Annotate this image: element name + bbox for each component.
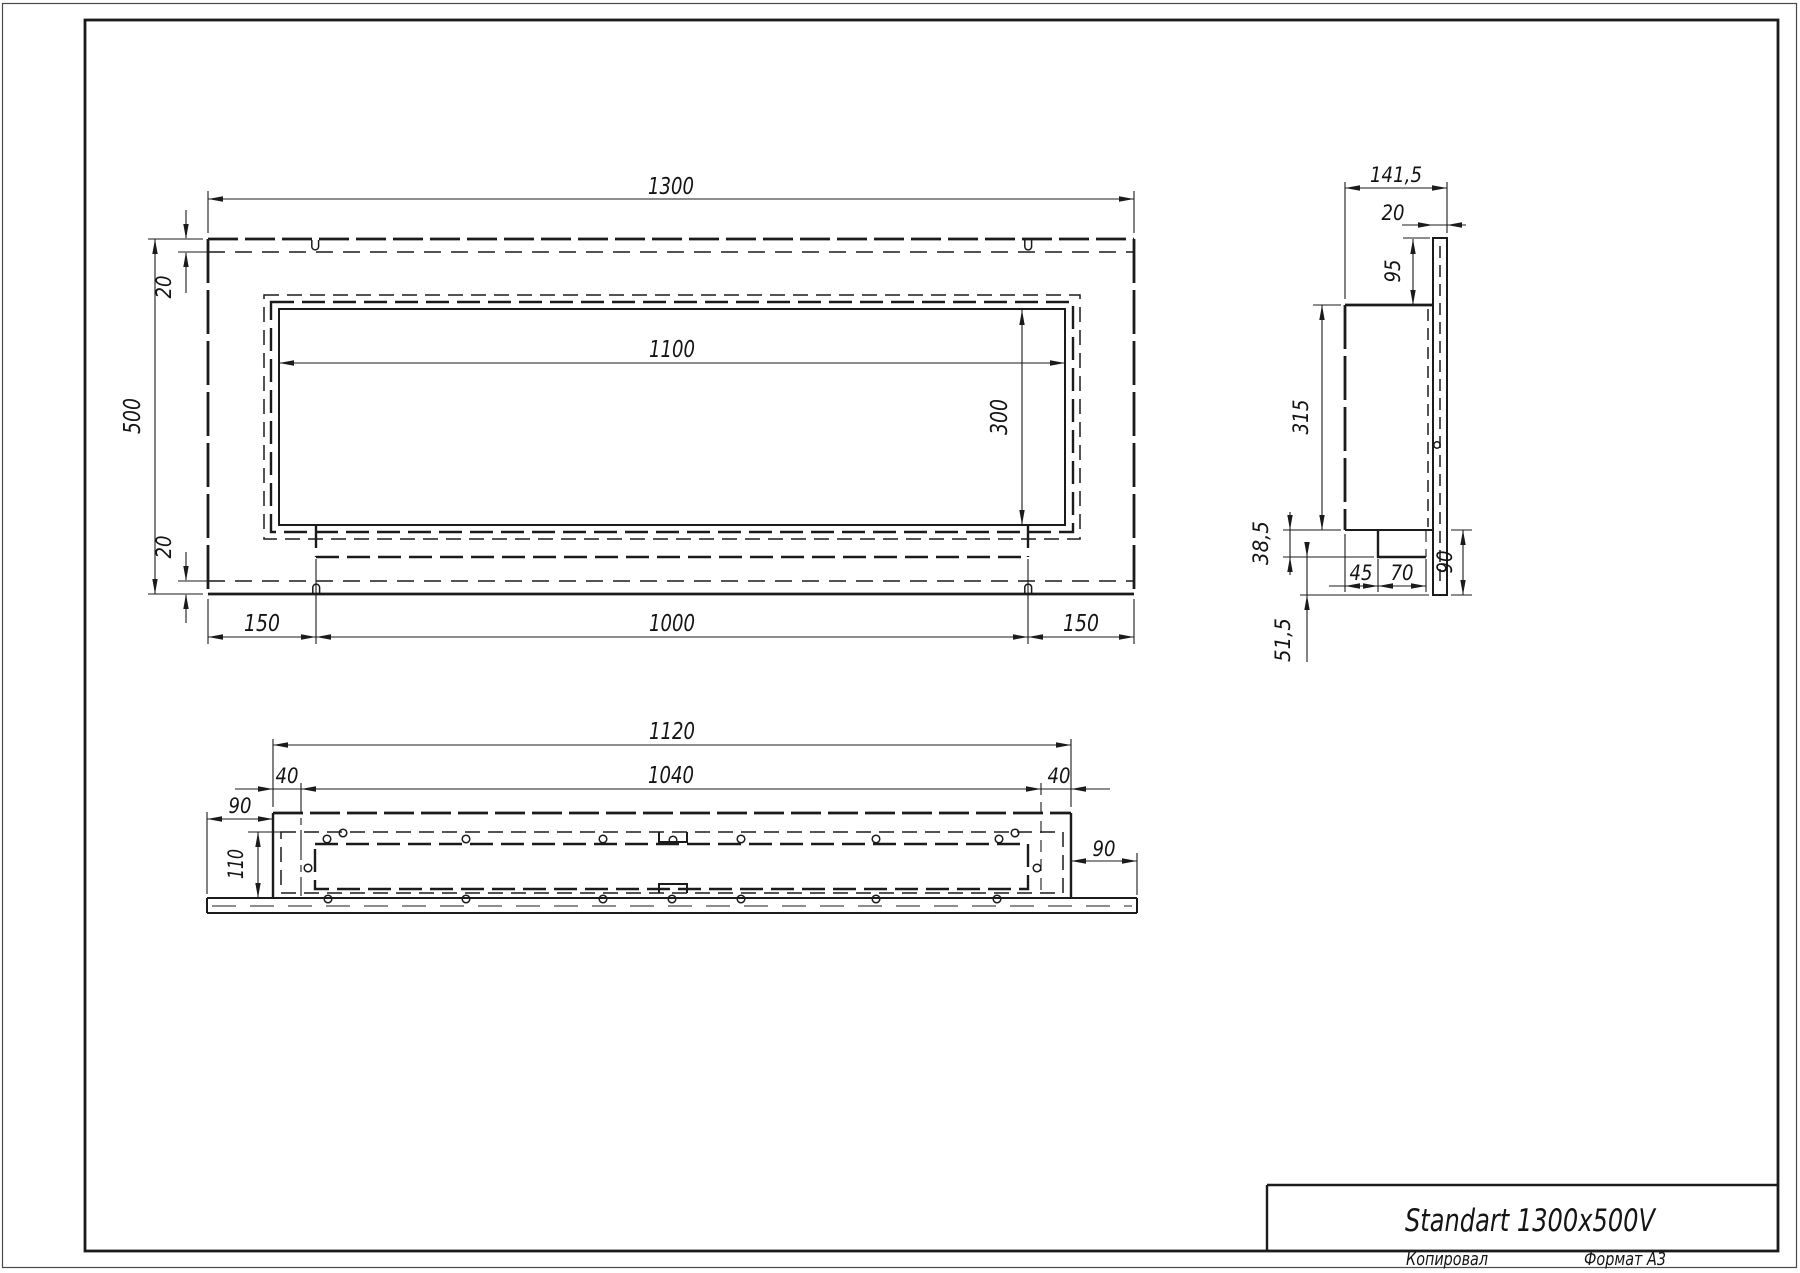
opening-hidden-outer <box>264 295 1080 539</box>
dim-bottom-inner-width: 1040 <box>648 763 694 789</box>
title-block: Standart 1300x500V Копировал Формат А3 <box>1267 1185 1778 1270</box>
center-notch-top <box>659 832 687 842</box>
plate-hole <box>1434 442 1440 448</box>
dim-ledge-drop: 38,5 <box>1249 521 1273 565</box>
dim-side-depth: 141,5 <box>1370 163 1422 187</box>
drawing-sheet: 1300 500 1100 300 20 20 150 1000 150 <box>0 0 1800 1273</box>
dim-bottom-drop: 51,5 <box>1271 618 1295 662</box>
side-view: 141,5 20 95 315 38,5 51,5 90 45 70 <box>1249 163 1472 662</box>
dim-front-height: 500 <box>120 398 146 434</box>
dim-ledge-inset: 45 <box>1350 561 1373 585</box>
dim-left-offset: 150 <box>244 611 280 637</box>
drawing-frame <box>85 20 1778 1251</box>
dim-body-height: 315 <box>1289 400 1313 435</box>
mounting-holes <box>304 829 1041 903</box>
bracket-hidden-edges <box>316 525 1028 557</box>
front-view: 1300 500 1100 300 20 20 150 1000 150 <box>120 174 1134 644</box>
technical-drawing: 1300 500 1100 300 20 20 150 1000 150 <box>0 0 1800 1273</box>
dim-top-inset: 20 <box>152 276 176 299</box>
dim-front-width: 1300 <box>648 174 694 200</box>
dim-center-width: 1000 <box>649 611 695 637</box>
keyhole-slot <box>312 240 319 250</box>
dim-bottom-left-flange: 90 <box>229 794 252 818</box>
dim-opening-height: 300 <box>987 399 1013 435</box>
dim-bottom-left-inset: 40 <box>276 764 299 788</box>
dim-bottom-right-flange: 90 <box>1093 837 1116 861</box>
drawing-title: Standart 1300x500V <box>1405 1203 1657 1239</box>
dim-bottom-depth: 110 <box>224 849 248 879</box>
bottom-view: 1120 1040 40 40 90 90 110 <box>207 719 1137 913</box>
dim-back-plate: 20 <box>1382 201 1405 225</box>
dim-right-offset: 150 <box>1063 611 1099 637</box>
dim-bottom-inset: 20 <box>152 536 176 559</box>
insert-hidden-inner <box>315 844 1028 889</box>
dim-flange-height: 90 <box>1433 551 1457 574</box>
dim-bottom-right-inset: 40 <box>1048 764 1071 788</box>
copied-label: Копировал <box>1406 1249 1488 1270</box>
keyhole-slot <box>1025 240 1032 250</box>
format-label: Формат А3 <box>1584 1249 1666 1270</box>
dim-opening-width: 1100 <box>649 337 695 363</box>
dim-ledge-width: 70 <box>1391 561 1414 585</box>
dim-top-drop: 95 <box>1381 260 1405 283</box>
dim-bottom-outer-width: 1120 <box>649 719 695 745</box>
ledge <box>1378 530 1426 557</box>
